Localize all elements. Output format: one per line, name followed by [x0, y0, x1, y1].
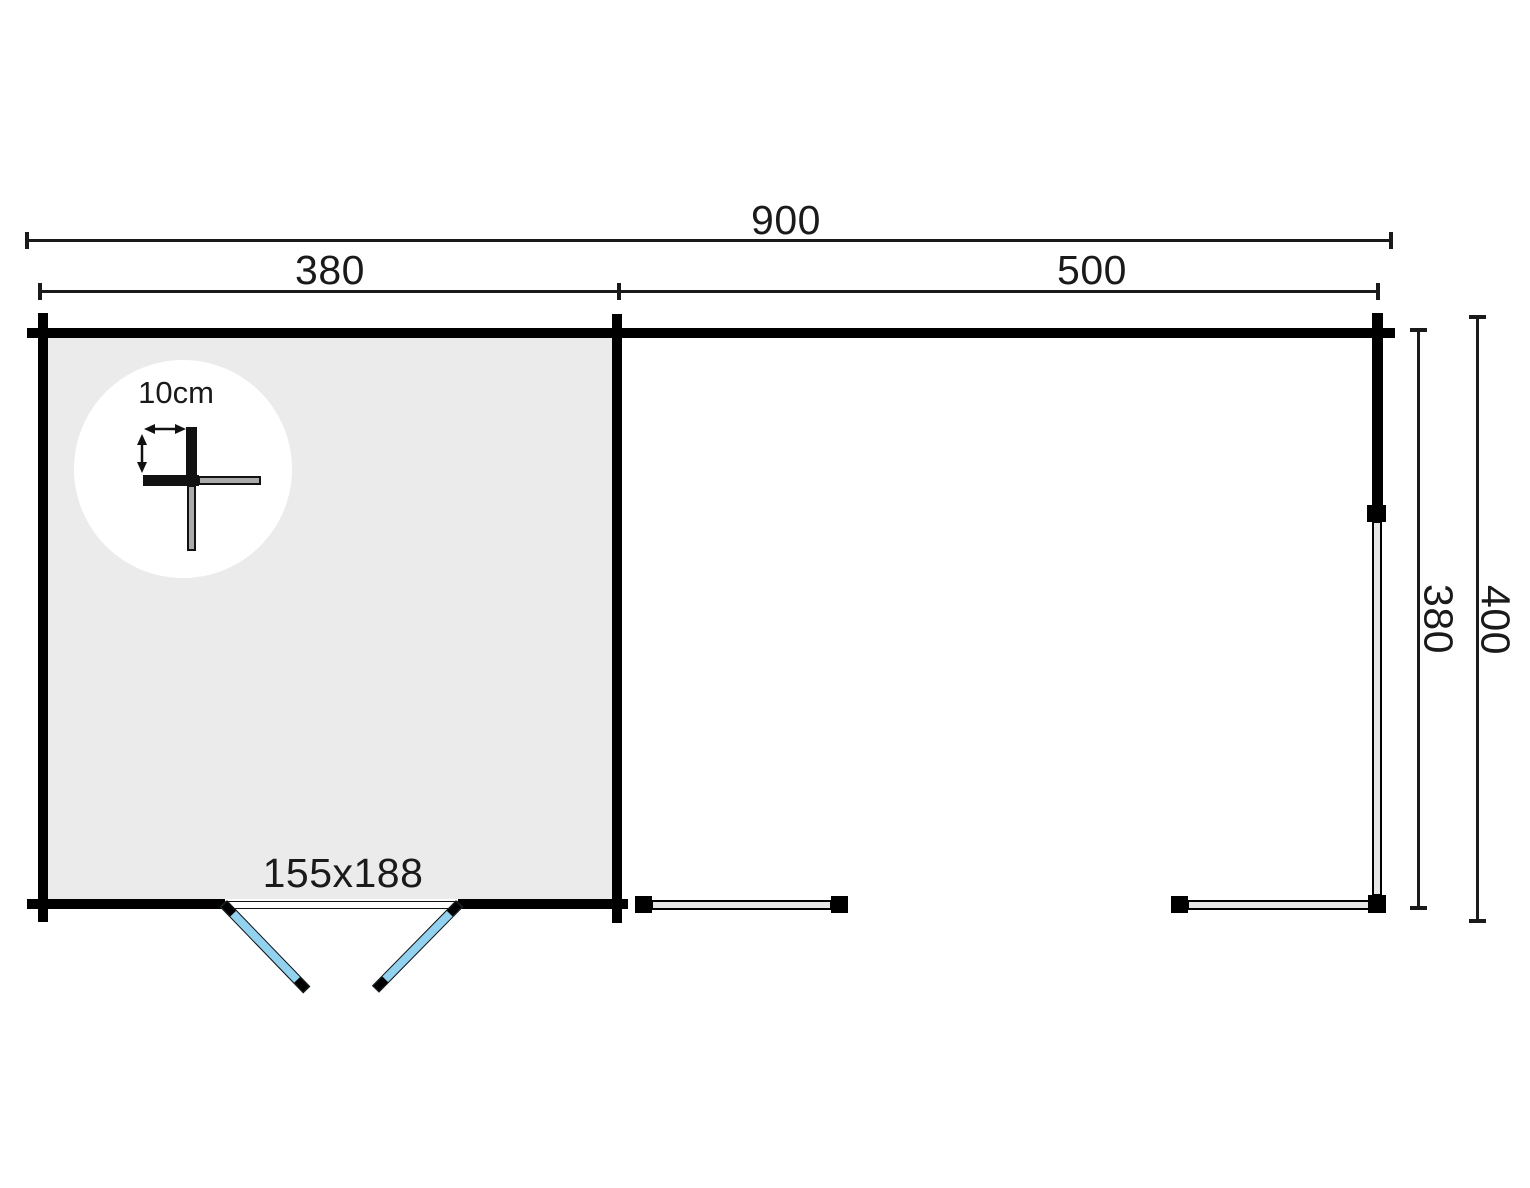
veranda-width-line [620, 290, 1378, 293]
railing-bottom-right [1187, 900, 1370, 910]
dim-tick [1389, 232, 1393, 249]
wall-middle [612, 314, 622, 923]
dim-tick [1469, 919, 1486, 923]
post-corner-bottom-right [1368, 895, 1386, 913]
post-right-middle [1367, 505, 1386, 522]
vertical-arrow-icon [137, 434, 147, 473]
dim-tick [1410, 328, 1427, 332]
room-width-line [40, 290, 620, 293]
wall-left [38, 313, 48, 922]
door-size-label: 155x188 [263, 850, 424, 897]
wall-top [27, 328, 1395, 338]
dim-tick [1376, 283, 1380, 300]
railing-bottom-left [651, 900, 832, 910]
dim-tick [25, 232, 29, 249]
depth-outer-label: 400 [1472, 585, 1519, 655]
post-bottom-3 [1171, 896, 1188, 913]
log-thickness-label: 10cm [138, 375, 214, 411]
detail-measure-arrows [128, 420, 203, 480]
depth-outer-line [1476, 317, 1479, 922]
railing-right [1372, 521, 1382, 896]
door-leaf-left [220, 900, 311, 993]
room-width-label: 380 [295, 247, 365, 294]
dim-tick [1410, 906, 1427, 910]
horizontal-arrow-icon [144, 424, 186, 434]
wall-right-upper [1372, 313, 1383, 505]
dim-tick [1469, 315, 1486, 319]
dim-tick [38, 283, 42, 300]
wall-bottom-right-of-door [458, 899, 628, 909]
overall-width-label: 900 [751, 197, 821, 244]
door-edge-cap [373, 976, 388, 991]
detail-log-vertical-gray [187, 485, 196, 551]
post-bottom-1 [635, 896, 652, 913]
door-opening-threshold [225, 901, 458, 909]
detail-log-horizontal-gray [198, 476, 261, 485]
floor-plan: 900 380 500 380 400 10cm [0, 0, 1530, 1188]
door-leaf-right [372, 900, 463, 993]
door-edge-cap [294, 977, 309, 992]
depth-inner-label: 380 [1415, 584, 1462, 654]
wall-bottom-left-of-door [27, 899, 225, 909]
post-bottom-2 [831, 896, 848, 913]
veranda-width-label: 500 [1057, 247, 1127, 294]
depth-inner-line [1417, 330, 1420, 908]
overall-width-line [27, 239, 1392, 242]
